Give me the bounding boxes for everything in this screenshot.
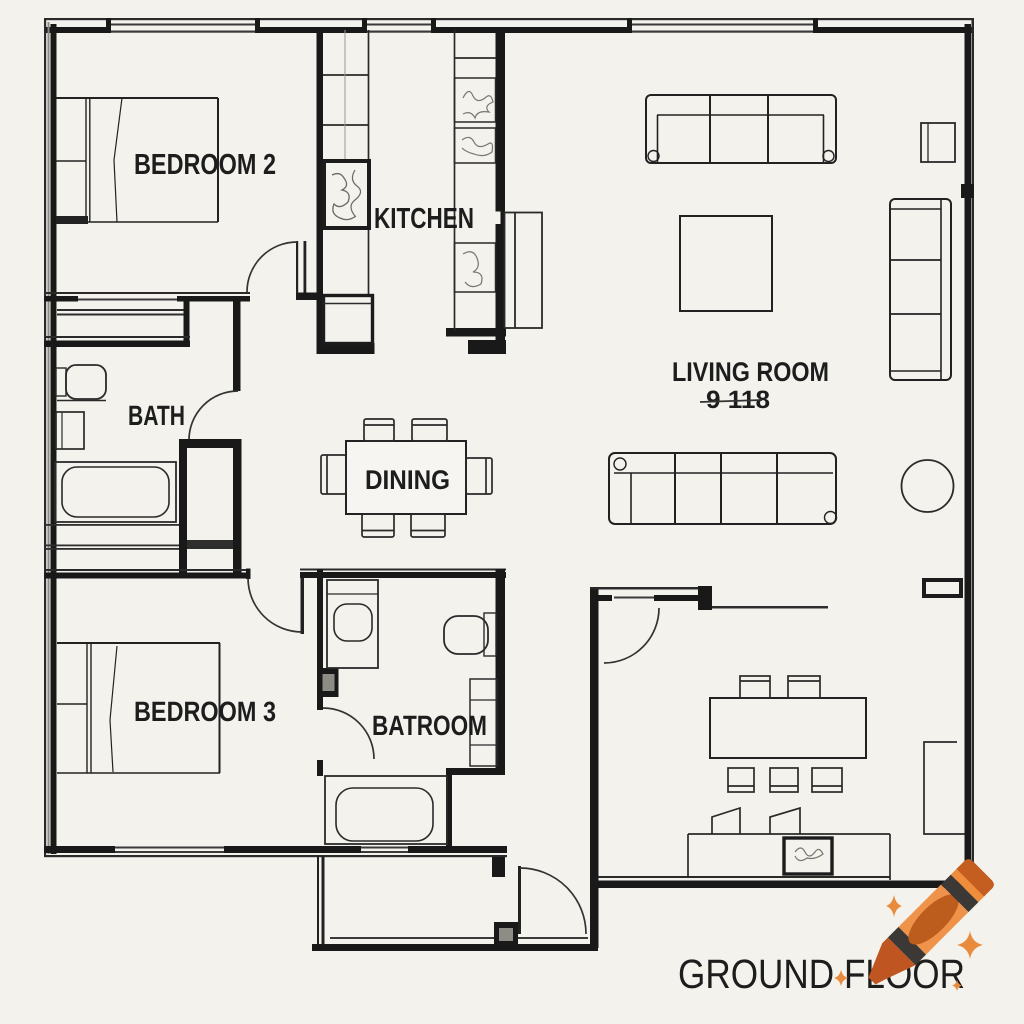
svg-text:BEDROOM 2: BEDROOM 2	[134, 149, 276, 181]
svg-text:KITCHEN: KITCHEN	[374, 203, 474, 235]
svg-text:DINING: DINING	[365, 465, 450, 495]
svg-text:BEDROOM 3: BEDROOM 3	[134, 696, 276, 727]
svg-text:BATROOM: BATROOM	[372, 710, 487, 741]
svg-text:LIVING ROOM: LIVING ROOM	[672, 357, 829, 387]
svg-text:BATH: BATH	[128, 400, 185, 431]
